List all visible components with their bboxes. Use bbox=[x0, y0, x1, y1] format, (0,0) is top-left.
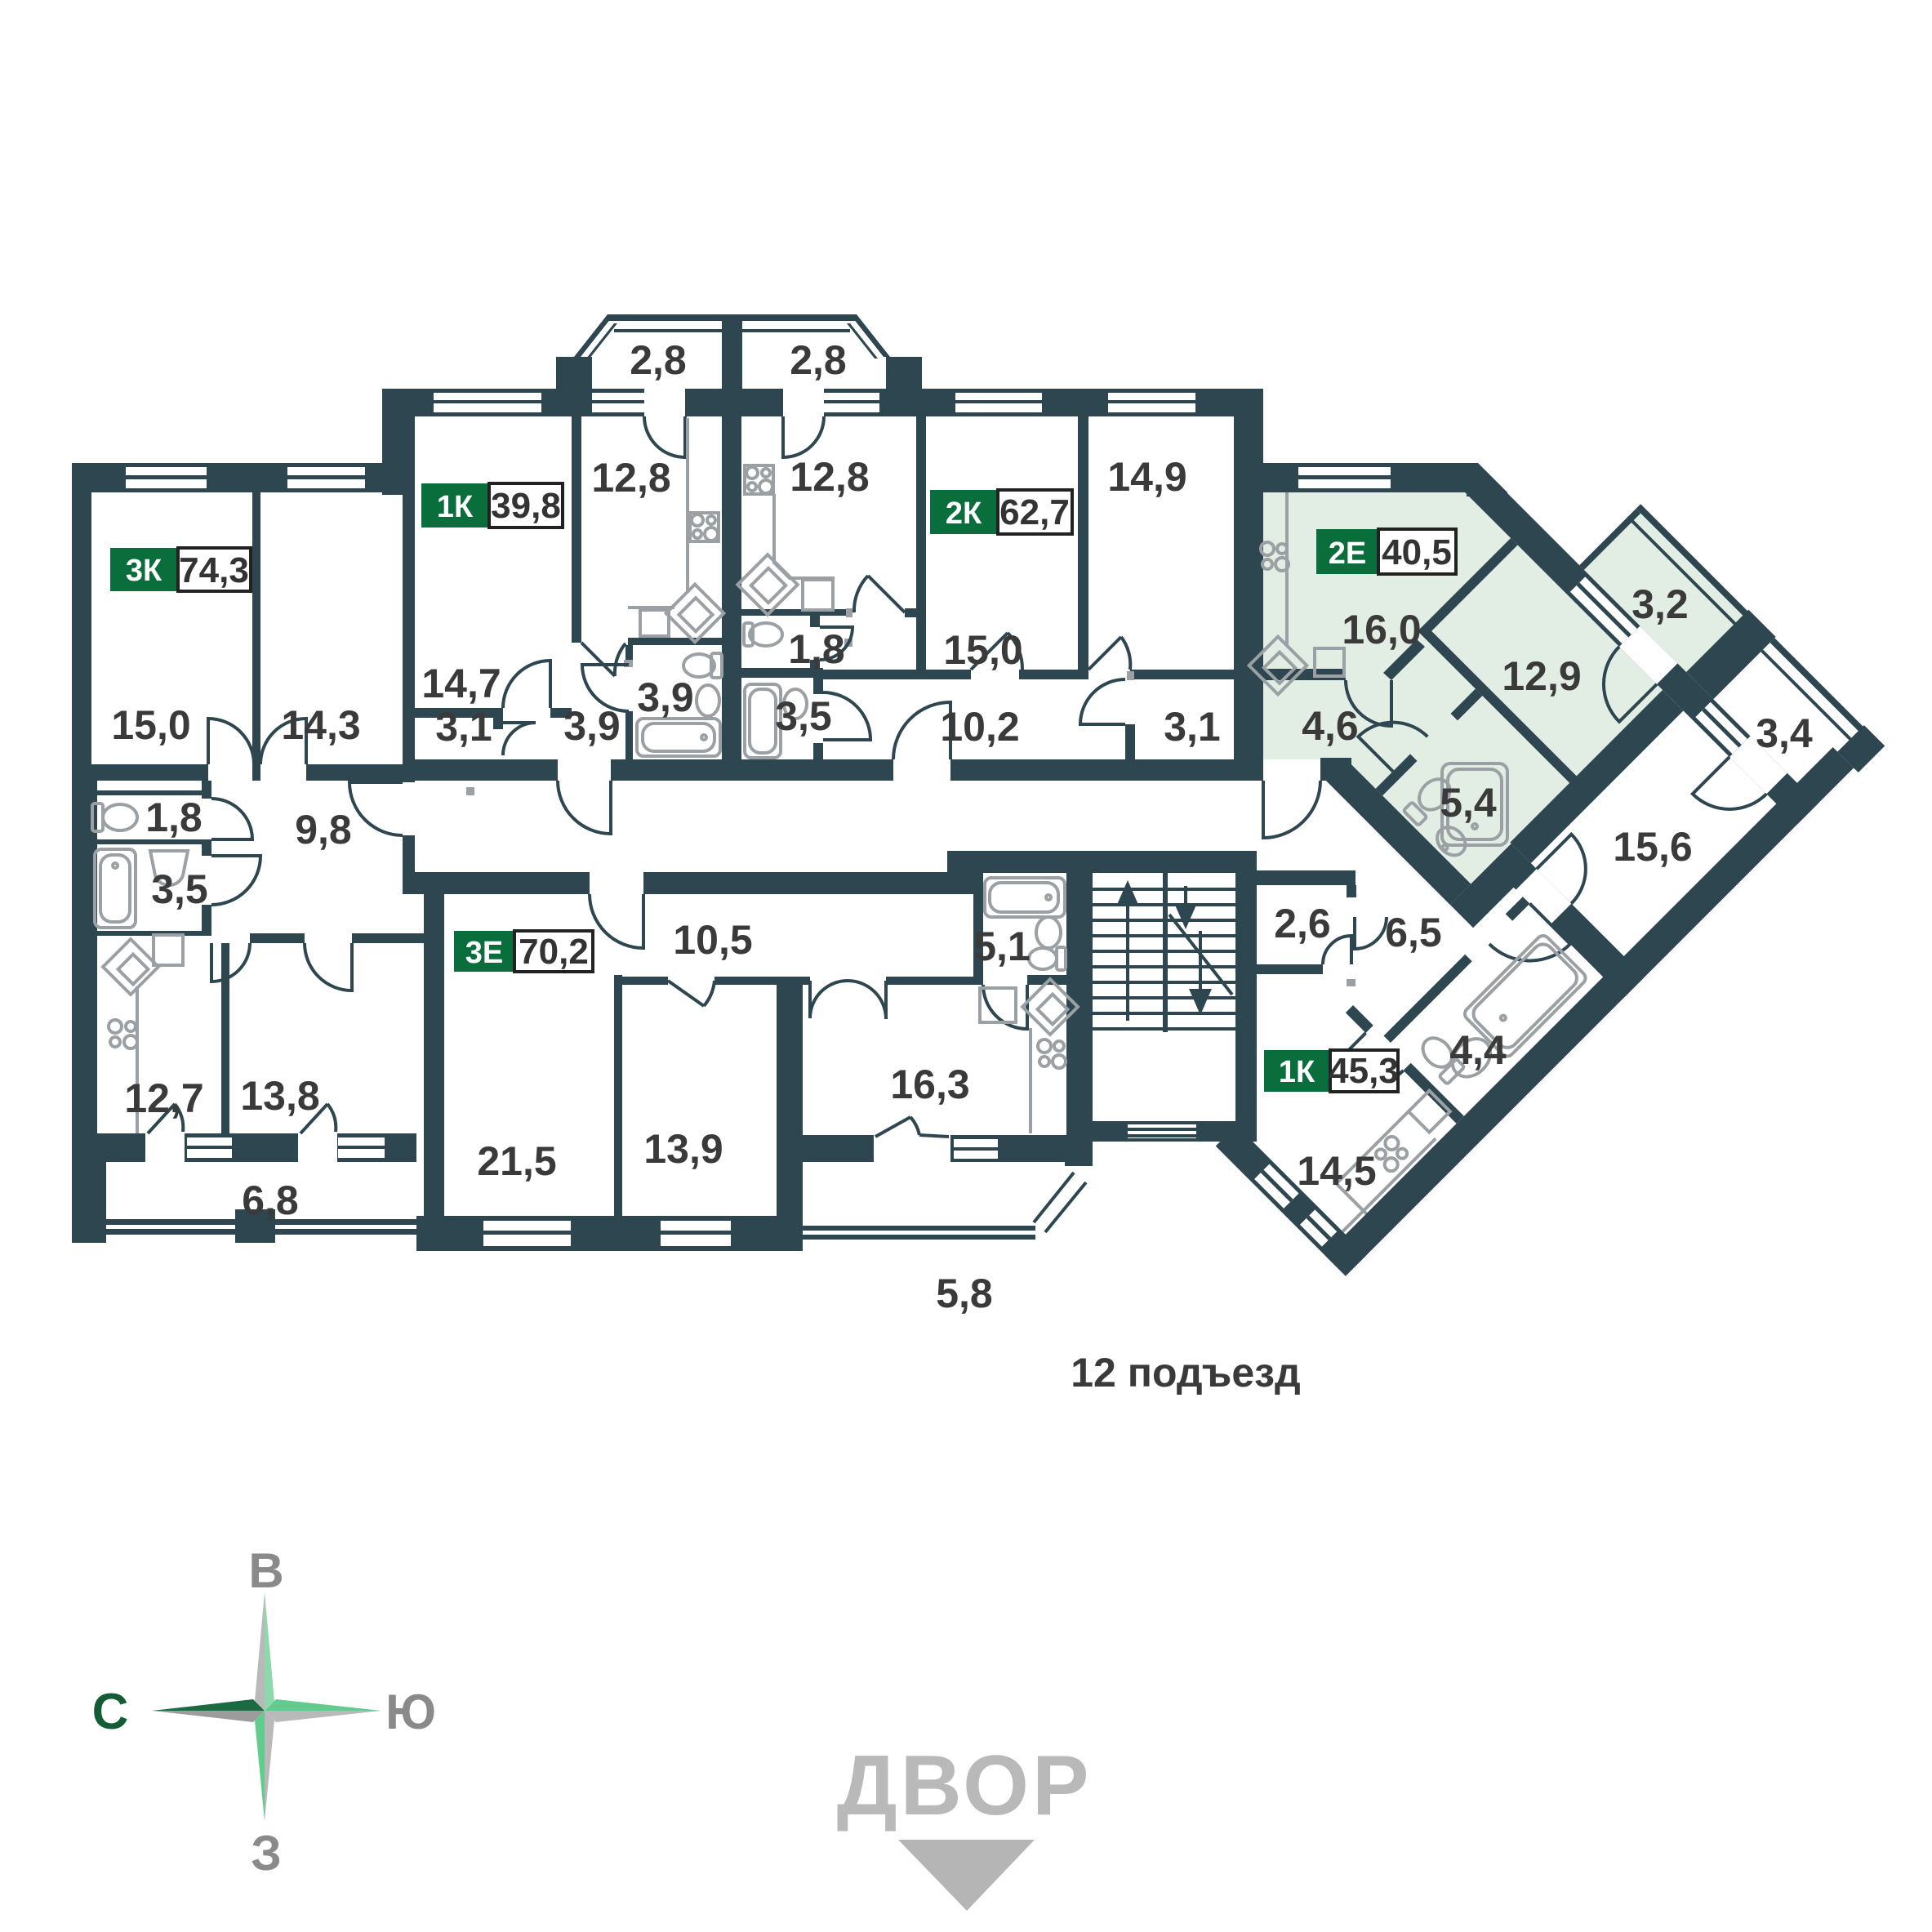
svg-text:14,9: 14,9 bbox=[1107, 454, 1186, 500]
svg-text:3,1: 3,1 bbox=[1164, 704, 1221, 750]
svg-text:3,4: 3,4 bbox=[1756, 710, 1813, 756]
svg-text:3Е: 3Е bbox=[465, 936, 503, 970]
svg-text:3,1: 3,1 bbox=[435, 704, 492, 750]
svg-text:З: З bbox=[251, 1826, 282, 1881]
svg-text:74,3: 74,3 bbox=[179, 550, 249, 590]
svg-text:3,5: 3,5 bbox=[151, 866, 208, 912]
svg-text:15,0: 15,0 bbox=[943, 627, 1022, 673]
svg-text:4,6: 4,6 bbox=[1302, 703, 1359, 749]
svg-text:12,7: 12,7 bbox=[124, 1075, 203, 1121]
svg-text:62,7: 62,7 bbox=[999, 492, 1070, 532]
svg-text:12,9: 12,9 bbox=[1502, 653, 1581, 699]
svg-text:45,3: 45,3 bbox=[1329, 1051, 1399, 1091]
svg-text:16,3: 16,3 bbox=[890, 1062, 969, 1107]
svg-text:3,5: 3,5 bbox=[775, 693, 832, 739]
svg-text:1К: 1К bbox=[437, 490, 474, 524]
svg-text:70,2: 70,2 bbox=[519, 932, 589, 972]
svg-text:2,8: 2,8 bbox=[630, 337, 687, 383]
svg-text:3,2: 3,2 bbox=[1632, 581, 1689, 627]
svg-text:12,8: 12,8 bbox=[591, 455, 670, 501]
svg-text:14,5: 14,5 bbox=[1297, 1148, 1376, 1194]
svg-text:9,8: 9,8 bbox=[295, 807, 352, 852]
svg-text:5,4: 5,4 bbox=[1440, 780, 1497, 826]
svg-text:2,6: 2,6 bbox=[1274, 901, 1331, 946]
svg-text:ДВОР: ДВОР bbox=[837, 1738, 1093, 1833]
svg-text:1К: 1К bbox=[1279, 1055, 1315, 1089]
svg-text:5,1: 5,1 bbox=[973, 924, 1031, 969]
svg-text:2,8: 2,8 bbox=[790, 337, 847, 383]
svg-text:14,7: 14,7 bbox=[421, 661, 501, 706]
svg-text:10,2: 10,2 bbox=[940, 704, 1019, 750]
svg-text:13,8: 13,8 bbox=[240, 1073, 319, 1119]
svg-text:21,5: 21,5 bbox=[477, 1138, 556, 1184]
svg-text:Ю: Ю bbox=[385, 1685, 436, 1739]
svg-text:1,8: 1,8 bbox=[145, 795, 203, 840]
svg-text:3К: 3К bbox=[126, 554, 162, 588]
svg-text:15,0: 15,0 bbox=[111, 702, 190, 748]
svg-text:1,8: 1,8 bbox=[788, 626, 845, 672]
svg-text:3,9: 3,9 bbox=[563, 703, 621, 749]
svg-text:12,8: 12,8 bbox=[790, 454, 869, 500]
svg-text:2К: 2К bbox=[946, 496, 982, 531]
svg-text:39,8: 39,8 bbox=[491, 486, 561, 526]
svg-text:6,5: 6,5 bbox=[1385, 910, 1442, 955]
svg-text:10,5: 10,5 bbox=[673, 917, 752, 963]
svg-text:2Е: 2Е bbox=[1329, 536, 1366, 571]
svg-text:16,0: 16,0 bbox=[1342, 607, 1421, 652]
svg-text:13,9: 13,9 bbox=[643, 1126, 723, 1172]
svg-text:В: В bbox=[248, 1543, 283, 1598]
svg-text:15,6: 15,6 bbox=[1613, 824, 1692, 870]
svg-text:4,4: 4,4 bbox=[1449, 1027, 1507, 1073]
svg-text:40,5: 40,5 bbox=[1382, 532, 1452, 572]
svg-text:6,8: 6,8 bbox=[242, 1177, 299, 1223]
svg-text:5,8: 5,8 bbox=[936, 1271, 993, 1316]
svg-text:12 подъезд: 12 подъезд bbox=[1071, 1350, 1301, 1396]
svg-text:14,3: 14,3 bbox=[281, 702, 360, 748]
svg-text:С: С bbox=[92, 1684, 129, 1740]
svg-text:3,9: 3,9 bbox=[637, 674, 694, 720]
